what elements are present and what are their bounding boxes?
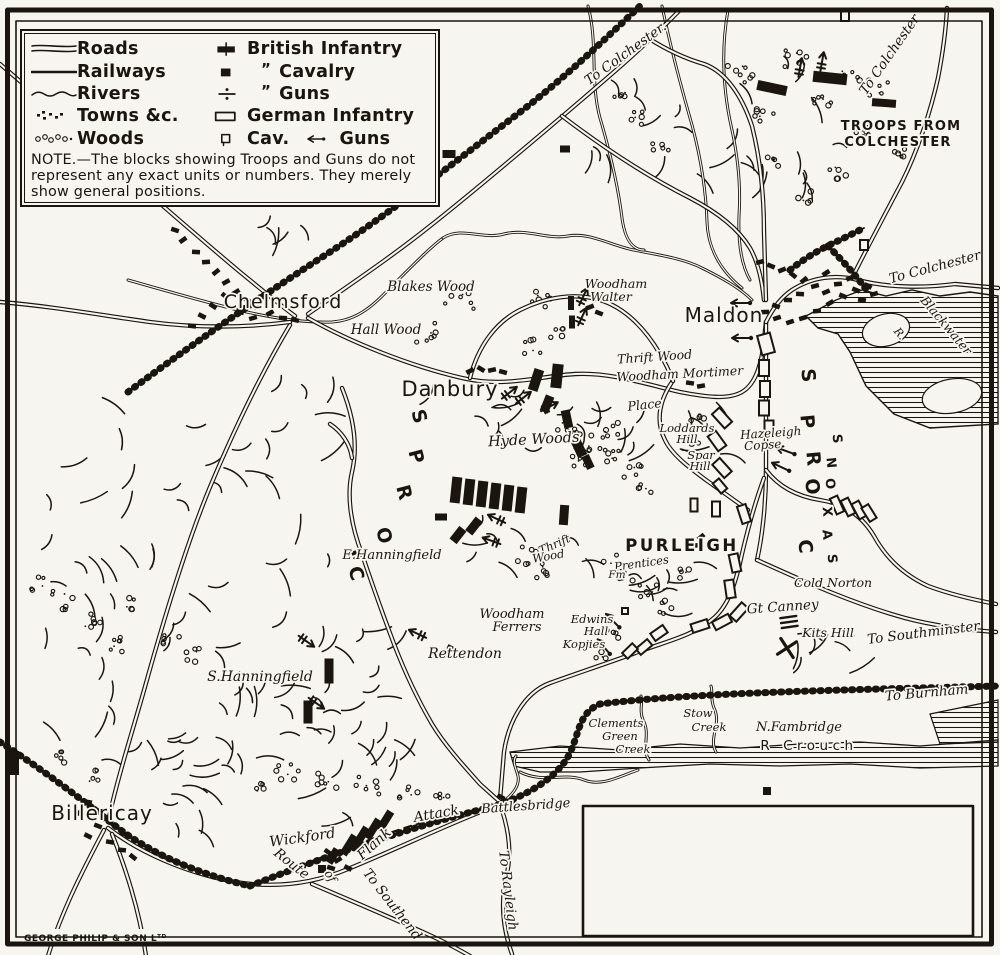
wood-tree [743, 81, 746, 84]
contour-arc [463, 543, 488, 545]
town-block [83, 832, 92, 840]
wood-tree [783, 65, 787, 69]
wood-tree [761, 109, 766, 114]
contour-arc [216, 643, 240, 649]
british-infantry-unit [756, 80, 787, 96]
wood-tree [554, 328, 558, 332]
contour-arc [400, 739, 416, 761]
inset-box [583, 806, 973, 936]
wood-tree [804, 55, 809, 60]
wood-tree [62, 760, 67, 765]
town-block [279, 316, 287, 321]
town-block [784, 298, 792, 303]
wood-tree [678, 576, 683, 581]
contour-arc [272, 423, 290, 435]
british-infantry-unit [559, 505, 569, 526]
road-loddards-hill [660, 382, 748, 510]
wood-tree [826, 103, 831, 108]
label-kopjies: Kopjies [562, 637, 606, 651]
wood-dot [759, 115, 761, 117]
town-block [796, 292, 804, 297]
wood-tree [629, 117, 634, 122]
town-block [799, 315, 808, 322]
wood-tree [572, 464, 576, 468]
label-chelmsford: Chelmsford [224, 291, 343, 313]
legend-label: British Infantry [247, 39, 402, 59]
corps-letter-saxons-5: S [829, 433, 845, 444]
corps-letter-saxons-3: O [822, 478, 838, 490]
dot [323, 137, 326, 140]
legend-label: Guns [339, 129, 390, 149]
contour-arc [246, 469, 273, 478]
wood-tree [193, 659, 198, 664]
german-cavalry-symbol [207, 131, 247, 147]
german-infantry-unit [650, 625, 667, 641]
wood-tree [559, 333, 564, 338]
wood-tree [364, 787, 368, 791]
wood-tree [639, 114, 644, 119]
contour-arc [199, 810, 203, 833]
corps-letter-corps-3: P [795, 414, 818, 430]
wood-tree [354, 783, 358, 787]
town-block [118, 847, 126, 852]
legend-columns: RoadsRailwaysRiversTowns &c.Woods Britis… [31, 38, 427, 150]
wood-dot [685, 571, 687, 573]
british-guns-symbol [816, 51, 827, 71]
wood-tree [279, 777, 284, 782]
label-hall: Hall [583, 624, 609, 638]
wood-dot [634, 117, 636, 119]
woods-icon [31, 131, 77, 147]
wood-dot [126, 606, 128, 608]
crouch-east-arm [930, 700, 998, 744]
contour-arc [670, 579, 698, 584]
german-infantry-unit [737, 504, 751, 524]
contour-arc [45, 628, 48, 648]
wood-tree [334, 785, 339, 790]
wood-circle [49, 137, 54, 142]
label-stow: Stow [683, 706, 712, 720]
legend-box: RoadsRailwaysRiversTowns &c.Woods Britis… [20, 29, 440, 207]
contour-arc [835, 640, 850, 650]
wood-dot [60, 759, 62, 761]
label-hill: Hill [675, 432, 697, 446]
legend-item-roads: Roads [31, 38, 207, 60]
town-dot [49, 113, 52, 116]
corps-letter-corps-4: S [796, 368, 819, 384]
wood-tree [70, 595, 75, 600]
german-infantry-unit [760, 381, 770, 397]
roads-glyph [32, 51, 76, 52]
british-infantry-unit [435, 514, 447, 521]
contour-arc [618, 427, 635, 442]
wood-tree [89, 612, 93, 616]
contour-arc [378, 722, 390, 743]
label-r-crouch: R Crouch [760, 738, 857, 754]
wood-dot [773, 159, 775, 161]
wood-tree [744, 66, 747, 69]
towns-symbol [31, 108, 77, 124]
town-block [834, 281, 842, 286]
wood-dot [89, 780, 91, 782]
british-infantry-unit [9, 751, 19, 775]
wood-tree [821, 95, 824, 98]
british-infantry-unit [325, 659, 334, 684]
wood-dot [610, 562, 612, 564]
legend-label: Rivers [77, 84, 141, 104]
wood-tree [274, 768, 279, 773]
wood-tree [598, 447, 602, 451]
contour-arc [89, 555, 106, 583]
label-thrift-wood: Thrift Wood [617, 346, 693, 366]
wood-tree [472, 307, 475, 310]
wood-dot [822, 98, 824, 100]
contour-arc [710, 155, 735, 170]
wood-tree [772, 112, 775, 115]
wood-dot [168, 643, 170, 645]
gun-tail-dot [749, 336, 753, 340]
contour-arc [674, 125, 692, 132]
label-to-rayleigh: To Rayleigh [495, 850, 521, 932]
german-guns-symbol [770, 460, 792, 475]
german-infantry-unit [622, 643, 638, 658]
corps-letter-corps-2: R [801, 450, 824, 467]
contour-arc [257, 755, 284, 760]
wood-tree [647, 594, 650, 597]
wood-dot [366, 785, 368, 787]
town-block [211, 268, 220, 276]
wood-tree [549, 335, 553, 339]
contour-arc [629, 572, 642, 578]
wood-tree [612, 450, 615, 453]
british-infantry-unit [502, 485, 515, 512]
wood-tree [627, 465, 632, 470]
wood-tree [113, 638, 116, 641]
label-hyde-woods: Hyde Woods [487, 430, 580, 451]
contour-arc [621, 429, 627, 453]
town-dot [60, 113, 63, 116]
wood-tree [535, 576, 539, 580]
wood-dot [443, 797, 445, 799]
british-guns-symbol [486, 511, 507, 526]
contour-arc [629, 576, 655, 588]
wood-tree [615, 553, 619, 557]
wood-tree [185, 658, 190, 663]
label-n-fambridge: N.Fambridge [755, 720, 842, 735]
label-s-hanningfield: S.Hanningfield [207, 669, 313, 685]
wood-dot [645, 488, 647, 490]
label-copse: Copse [744, 437, 782, 454]
town-block [697, 383, 706, 389]
legend-item-railways: Railways [31, 60, 207, 82]
contour-arc [238, 754, 244, 774]
contour-arc [301, 225, 310, 240]
wood-tree [469, 301, 472, 304]
contour-arc [647, 585, 655, 601]
roads-icon [31, 41, 77, 57]
german-infantry-unit [759, 401, 769, 416]
town-block [811, 283, 820, 289]
town-block [488, 367, 497, 373]
german-infantry-unit [757, 333, 775, 356]
german-infantry-icon [207, 108, 247, 124]
wood-dot [802, 200, 804, 202]
legend-label: Cavalry [279, 62, 355, 82]
wood-tree [638, 584, 641, 587]
contour-arc [332, 761, 345, 779]
contour-arc [47, 494, 53, 510]
wood-tree [669, 606, 674, 611]
wood-tree [785, 53, 790, 58]
town-block [202, 259, 210, 264]
town-block [170, 227, 179, 234]
river-crouch-channel [510, 740, 998, 772]
contour-arc [363, 685, 380, 695]
label-maldon: Maldon [685, 303, 764, 327]
label-woodham-mortimer: Woodham Mortimer [616, 363, 745, 385]
contour-arc [315, 412, 345, 416]
wood-tree [606, 434, 610, 438]
contour-arc [811, 97, 824, 123]
german-infantry-unit [712, 458, 731, 478]
contour-arc [747, 155, 756, 170]
wood-tree [177, 635, 181, 639]
contour-arc [322, 635, 339, 654]
wood-dot [633, 467, 635, 469]
contour-arc [636, 96, 647, 110]
british-infantry-symbol [207, 41, 247, 57]
wood-tree [59, 750, 62, 753]
contour-arc [222, 763, 235, 772]
british-infantry-unit [561, 409, 574, 428]
british-infantry-unit [476, 481, 489, 508]
wood-tree [797, 50, 802, 55]
inf-block [216, 113, 235, 121]
x-corps-mark [778, 639, 797, 658]
legend-item-cavalry: ”Cavalry [207, 60, 427, 82]
label-purleigh: PURLEIGH [625, 536, 738, 555]
town-dot [42, 111, 45, 114]
contour-arc [111, 594, 117, 609]
wood-tree [373, 779, 378, 784]
marks-layer [778, 616, 798, 658]
wood-tree [605, 459, 610, 464]
contour-arc [585, 151, 594, 174]
wood-tree [601, 436, 604, 439]
contour-arc [467, 552, 477, 562]
british-guns-icon [207, 86, 247, 102]
wood-dot [64, 593, 66, 595]
wood-tree [516, 559, 521, 564]
corps-letter-saxons-4: N [823, 457, 839, 469]
label-fm: Fm [607, 569, 625, 581]
wood-tree [649, 490, 653, 494]
label-hall-wood: Hall Wood [350, 322, 422, 338]
contour-arc [665, 613, 692, 616]
label-gt-canney: Gt Canney [746, 596, 819, 617]
wood-tree [357, 775, 360, 778]
wood-tree [523, 351, 527, 355]
town-block [178, 236, 187, 244]
contour-arc [101, 558, 118, 582]
legend-item-rivers: Rivers [31, 83, 207, 105]
wood-tree [828, 168, 832, 172]
town-block [772, 315, 781, 322]
contour-arc [172, 791, 194, 803]
wood-tree [758, 119, 762, 123]
corps-letter-saxons-0: S [824, 553, 840, 564]
label-cold-norton: Cold Norton [794, 575, 872, 590]
british-infantry-unit [872, 98, 896, 108]
town-dot [43, 117, 46, 120]
battery-bars-mark [780, 616, 797, 628]
label-colchester: COLCHESTER [844, 135, 951, 150]
wood-dot [898, 152, 900, 154]
contour-arc [272, 376, 284, 394]
german-cavalry-unit [860, 240, 868, 250]
contour-arc [295, 514, 302, 544]
british-infantry-unit [569, 316, 575, 329]
contour-arc [187, 424, 206, 428]
contour-arc [372, 747, 387, 765]
contour-arc [319, 626, 325, 647]
town-block [686, 380, 695, 386]
contour-arc [258, 216, 272, 230]
contour-arc [850, 658, 875, 675]
wood-tree [459, 295, 463, 299]
wood-dot [430, 332, 432, 334]
wood-tree [520, 545, 524, 549]
town-block [499, 369, 508, 375]
contour-arc [329, 726, 337, 744]
contour-arc [121, 545, 140, 568]
contour-arc [199, 829, 215, 847]
contour-arc [266, 439, 270, 459]
wood-tree [634, 473, 637, 476]
wood-dot [664, 603, 666, 605]
legend-label: Roads [77, 39, 139, 59]
legend-item-towns-c: Towns &c. [31, 105, 207, 127]
wood-tree [630, 578, 635, 583]
wood-tree [316, 771, 321, 776]
contour-arc [342, 702, 366, 713]
german-infantry-unit [713, 478, 727, 493]
legend-label: Cav. [247, 129, 289, 149]
town-block [128, 853, 137, 862]
wood-dot [578, 460, 580, 462]
contour-arc [336, 645, 355, 663]
wood-tree [51, 593, 54, 596]
wood-tree [292, 777, 297, 782]
wood-tree [438, 796, 441, 799]
railway-maldon-branch-ticks [828, 246, 868, 292]
contour-arc [328, 377, 337, 403]
contour-arc [802, 173, 806, 198]
legend-item-german-infantry: German Infantry [207, 105, 427, 127]
british-infantry-unit [581, 454, 594, 470]
wood-tree [261, 786, 266, 791]
wood-dot [84, 625, 86, 627]
wood-tree [120, 649, 124, 653]
contour-arc [389, 752, 396, 767]
contour-arc [298, 788, 326, 800]
corps-letter-corps-2: R [391, 483, 416, 503]
german-infantry-unit [622, 608, 628, 614]
wood-tree [277, 764, 281, 768]
british-guns-symbol [481, 534, 502, 548]
wood-tree [886, 81, 889, 84]
contour-arc [147, 740, 160, 766]
wood-tree [765, 155, 770, 160]
wood-tree [95, 769, 98, 772]
wood-dot [699, 418, 701, 420]
wood-tree [375, 785, 379, 789]
wood-tree [639, 595, 643, 599]
wood-dot [604, 431, 606, 433]
legend-inner-border: RoadsRailwaysRiversTowns &c.Woods Britis… [24, 33, 436, 203]
corps-letter-corps-4: S [406, 407, 431, 426]
label-kits-hill: Kits Hill [801, 625, 854, 640]
british-infantry-unit [813, 71, 848, 85]
contour-arc [122, 465, 137, 490]
british-infantry-unit [568, 296, 574, 310]
wood-tree [127, 596, 132, 601]
contour-arc [169, 733, 187, 740]
contour-arc [352, 721, 363, 735]
rivers-glyph [32, 92, 76, 96]
contour-arc [204, 787, 223, 804]
wood-dot [559, 329, 561, 331]
german-infantry-unit [691, 619, 710, 633]
british-cavalry-icon [207, 64, 247, 80]
contour-arc [173, 760, 184, 771]
wood-tree [444, 302, 447, 305]
label-to-burnham: To Burnham [884, 681, 969, 704]
wood-dot [537, 295, 539, 297]
wood-tree [776, 164, 781, 169]
contour-arc [246, 688, 254, 703]
german-infantry-symbol [207, 108, 247, 124]
contour-arc [280, 732, 299, 736]
contour-arc [511, 527, 527, 541]
wood-dot [327, 781, 329, 783]
wood-tree [406, 788, 409, 791]
wood-tree [856, 76, 860, 80]
contour-arc [798, 152, 801, 174]
contour-arc [597, 402, 601, 427]
german-infantry-unit [691, 499, 698, 512]
contour-arc [81, 492, 108, 505]
wood-dot [287, 773, 289, 775]
roads-glyph [32, 46, 76, 47]
british-infantry-unit [489, 483, 502, 510]
label-walter: Walter [590, 289, 633, 304]
ditto-mark: ” [261, 60, 271, 78]
contour-arc [119, 428, 123, 449]
contour-arc [51, 580, 67, 586]
wood-dot [42, 585, 44, 587]
corps-letter-corps-0: C [793, 539, 816, 555]
wood-dot [410, 794, 412, 796]
legend-label: Woods [77, 129, 144, 149]
contour-arc [370, 666, 381, 679]
label-green: Green [602, 729, 638, 743]
contour-arc [164, 803, 178, 806]
wood-tree [534, 289, 539, 294]
town-block [821, 288, 830, 295]
british-infantry-unit [550, 363, 563, 388]
wood-tree [784, 49, 787, 52]
